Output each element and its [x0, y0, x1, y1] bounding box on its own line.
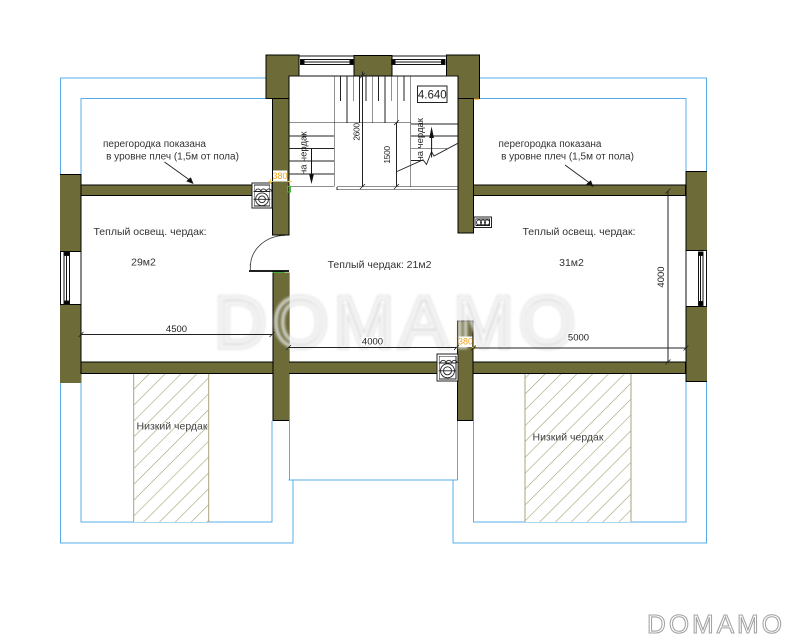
- svg-text:DOMAMO: DOMAMO: [215, 284, 581, 363]
- svg-text:5000: 5000: [568, 333, 589, 344]
- svg-text:4000: 4000: [656, 266, 667, 287]
- svg-text:в уровне плеч (1,5м от пола): в уровне плеч (1,5м от пола): [106, 152, 239, 163]
- svg-text:Теплый освещ. чердак:: Теплый освещ. чердак:: [93, 226, 206, 238]
- svg-text:380: 380: [458, 337, 473, 347]
- svg-text:перегородка показана: перегородка показана: [103, 139, 206, 150]
- svg-text:380: 380: [272, 171, 287, 181]
- svg-text:31м2: 31м2: [559, 257, 584, 269]
- svg-text:DOMAMO: DOMAMO: [647, 609, 785, 639]
- svg-text:Теплый освещ. чердак:: Теплый освещ. чердак:: [522, 226, 635, 238]
- svg-text:Теплый чердак: 21м2: Теплый чердак: 21м2: [328, 259, 432, 271]
- svg-text:на чердак: на чердак: [415, 117, 426, 161]
- svg-text:4500: 4500: [166, 324, 187, 335]
- svg-text:Низкий чердак: Низкий чердак: [533, 432, 604, 444]
- svg-text:Низкий чердак: Низкий чердак: [137, 421, 208, 433]
- svg-text:1500: 1500: [382, 146, 392, 164]
- svg-text:в уровне плеч (1,5м от пола): в уровне плеч (1,5м от пола): [501, 152, 634, 163]
- svg-text:29м2: 29м2: [131, 257, 156, 269]
- svg-text:2600: 2600: [352, 123, 362, 141]
- svg-text:4000: 4000: [362, 337, 383, 348]
- svg-text:на чердак: на чердак: [299, 131, 310, 175]
- svg-text:4.640: 4.640: [418, 90, 447, 102]
- svg-text:перегородка показана: перегородка показана: [498, 139, 601, 150]
